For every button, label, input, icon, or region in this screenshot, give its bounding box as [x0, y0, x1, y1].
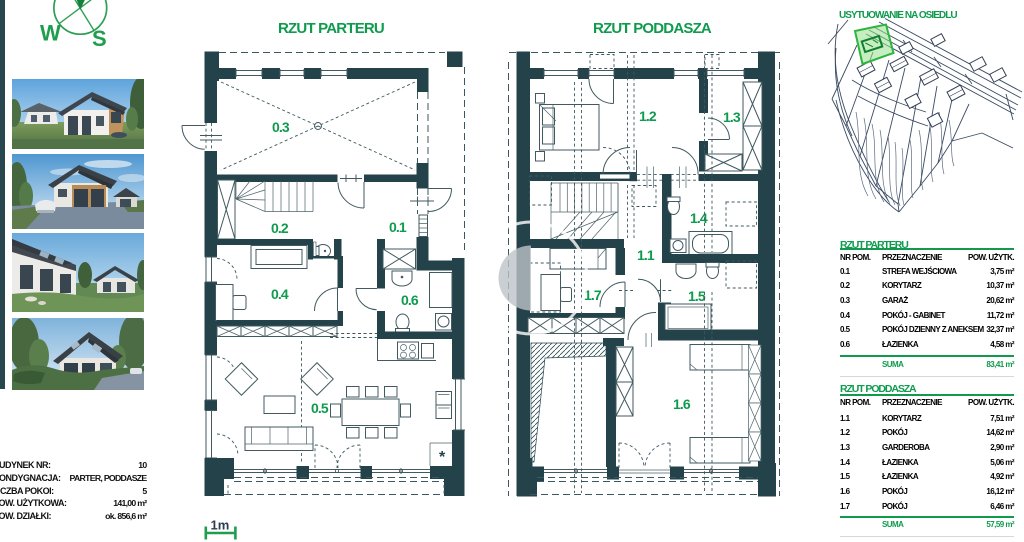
svg-text:1.6: 1.6: [673, 396, 691, 412]
svg-text:W: W: [40, 21, 61, 46]
svg-text:*: *: [439, 449, 446, 466]
svg-text:1.3: 1.3: [723, 109, 741, 125]
svg-text:S: S: [92, 26, 107, 51]
svg-text:1.2: 1.2: [639, 108, 657, 124]
svg-text:0.2: 0.2: [271, 220, 289, 236]
svg-text:1m: 1m: [211, 518, 230, 533]
svg-text:0.6: 0.6: [401, 292, 419, 308]
svg-text:1.5: 1.5: [688, 288, 706, 304]
svg-text:0.3: 0.3: [272, 119, 290, 135]
svg-text:0.5: 0.5: [311, 400, 329, 416]
svg-text:1.1: 1.1: [637, 247, 655, 263]
svg-text:0.4: 0.4: [271, 286, 289, 302]
svg-text:1.4: 1.4: [690, 210, 708, 226]
svg-text:0.1: 0.1: [389, 219, 407, 235]
